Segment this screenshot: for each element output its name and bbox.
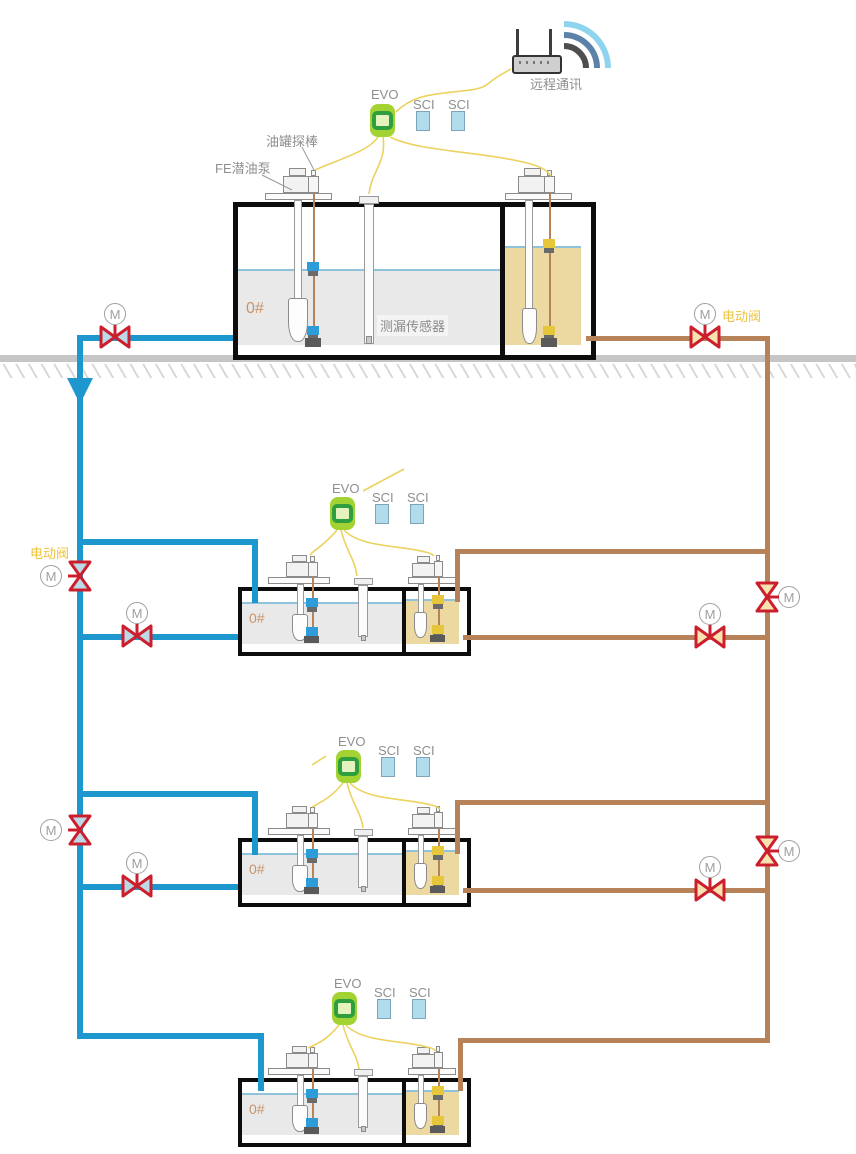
evo-controller-icon <box>330 497 355 530</box>
tank-divider <box>402 591 406 652</box>
pump-motor-cap <box>417 556 430 563</box>
pump-motor-cap <box>417 1047 430 1054</box>
pump-motor-cap <box>417 807 430 814</box>
probe-float <box>306 1089 318 1098</box>
pump-tube <box>297 835 304 867</box>
leak-sensor-collar <box>354 1069 373 1076</box>
sci-module-icon <box>381 757 395 777</box>
valve-motor-badge: M <box>104 303 126 325</box>
sci-module-icon <box>416 111 430 131</box>
electric-valve-label: 电动阀 <box>722 306 761 325</box>
evo-label: EVO <box>371 87 398 102</box>
probe-weight <box>305 338 321 347</box>
pump-tube <box>418 1075 424 1105</box>
leak-sensor-tube <box>358 836 368 888</box>
probe-float <box>306 1118 318 1127</box>
probe-head <box>308 176 319 193</box>
valve-motor-badge: M <box>699 856 721 878</box>
router-icon <box>512 55 562 74</box>
leak-sensor-tube <box>358 1076 368 1128</box>
wifi-signal-icon <box>562 8 626 70</box>
fe-pump-label: FE潜油泵 <box>215 158 271 177</box>
valve-motor-badge: M <box>699 603 721 625</box>
evo-screen <box>334 999 355 1018</box>
sci-label: SCI <box>409 985 431 1000</box>
pump-tube <box>297 1075 304 1107</box>
router-leds <box>519 61 553 64</box>
probe-float <box>432 625 444 634</box>
ground-hatch <box>0 364 856 378</box>
probe-float <box>307 262 319 271</box>
fuel-grade-label: 0# <box>249 1101 265 1117</box>
sci-module-icon <box>451 111 465 131</box>
probe-float <box>432 846 444 855</box>
probe-weight <box>304 1127 319 1134</box>
sci-label: SCI <box>413 743 435 758</box>
sci-label: SCI <box>372 490 394 505</box>
pump-body <box>414 1103 427 1129</box>
fuel-grade-label: 0# <box>249 861 265 877</box>
valve-motor-badge: M <box>778 586 800 608</box>
motor-valve-icon <box>120 623 154 654</box>
probe-head <box>308 813 318 828</box>
valve-motor-badge: M <box>126 852 148 874</box>
evo-controller-icon <box>336 750 361 783</box>
sci-module-icon <box>410 504 424 524</box>
valve-motor-badge: M <box>40 565 62 587</box>
pump-body <box>522 308 537 344</box>
motor-valve-icon <box>120 873 154 904</box>
pipe-gasoline-st2-top <box>455 549 770 554</box>
probe-head <box>434 812 443 828</box>
pump-tube <box>297 584 304 616</box>
sci-label: SCI <box>378 743 400 758</box>
tank-divider <box>500 207 505 355</box>
probe-weight <box>304 887 319 894</box>
pump-flange <box>268 577 330 584</box>
pipe-gasoline-st2-drop <box>455 549 460 602</box>
probe-head-tip <box>310 556 315 562</box>
tank-divider <box>402 1082 406 1143</box>
motor-valve-icon <box>754 580 780 619</box>
tank-divider <box>402 842 406 903</box>
leak-sensor-tip <box>361 1126 366 1132</box>
sci-module-icon <box>416 757 430 777</box>
pipe-diesel-st2-drop <box>252 539 258 603</box>
sci-module-icon <box>375 504 389 524</box>
pipe-gasoline-trunk <box>765 336 770 1043</box>
pump-flange <box>408 828 456 835</box>
pump-motor <box>412 563 436 577</box>
evo-label: EVO <box>332 481 359 496</box>
pipe-diesel-st3-drop <box>252 791 258 855</box>
pump-flange <box>408 1068 456 1075</box>
pump-motor <box>518 176 546 193</box>
pump-tube <box>418 584 424 614</box>
pump-flange <box>408 577 456 584</box>
pump-motor-cap <box>524 168 541 176</box>
motor-valve-icon <box>693 877 727 908</box>
probe-head-tip <box>310 1047 315 1053</box>
leak-sensor-tip <box>361 635 366 641</box>
leak-sensor-tip <box>361 886 366 892</box>
pipe-gasoline-st4-top <box>458 1038 770 1043</box>
pump-motor <box>412 814 436 828</box>
valve-motor-badge: M <box>778 840 800 862</box>
probe-float <box>306 878 318 887</box>
motor-valve-icon <box>693 624 727 655</box>
probe-float <box>432 1116 444 1125</box>
probe-weight <box>430 635 445 642</box>
pump-flange <box>268 828 330 835</box>
pipe-diesel-st3-top <box>77 791 258 797</box>
fuel-grade-label: 0# <box>249 610 265 626</box>
pump-tube <box>418 835 424 865</box>
pipe-diesel-trunk <box>77 335 83 1038</box>
probe-wire <box>549 193 551 345</box>
probe-float <box>432 595 444 604</box>
evo-label: EVO <box>338 734 365 749</box>
pump-motor-cap <box>292 555 307 562</box>
probe-weight <box>304 636 319 643</box>
evo-screen <box>332 504 353 523</box>
probe-head-tip <box>436 555 440 561</box>
leak-sensor-collar <box>354 578 373 585</box>
motor-valve-icon <box>754 834 780 873</box>
sci-label: SCI <box>448 97 470 112</box>
diesel-liquid <box>242 1093 402 1135</box>
probe-weight <box>430 1126 445 1133</box>
probe-head <box>544 176 555 193</box>
probe-weight <box>430 886 445 893</box>
probe-float <box>543 326 555 335</box>
pipe-diesel-st2-branch <box>77 634 238 640</box>
probe-head <box>308 562 318 577</box>
evo-screen <box>338 757 359 776</box>
pump-flange <box>268 1068 330 1075</box>
leak-sensor-label: 测漏传感器 <box>377 315 448 336</box>
pipe-gasoline-st3-drop <box>455 800 460 854</box>
pump-tube <box>294 200 302 300</box>
sci-label: SCI <box>413 97 435 112</box>
evo-label: EVO <box>334 976 361 991</box>
probe-head-tip <box>547 170 552 176</box>
leak-sensor-collar <box>359 196 379 204</box>
sci-label: SCI <box>407 490 429 505</box>
pipe-diesel-st2-top <box>77 539 258 545</box>
router-antenna <box>516 29 519 56</box>
pump-body <box>414 612 427 638</box>
leak-sensor-tip <box>366 336 372 344</box>
pipe-gasoline-st3-top <box>455 800 770 805</box>
probe-head <box>434 561 443 577</box>
pump-flange <box>505 193 572 200</box>
sci-label: SCI <box>374 985 396 1000</box>
motor-valve-icon <box>688 324 722 355</box>
tank-probe-label: 油罐探棒 <box>266 131 318 150</box>
pipe-gasoline-st4-drop <box>458 1038 463 1091</box>
pump-motor-cap <box>289 168 306 176</box>
probe-float <box>306 627 318 636</box>
probe-float <box>307 326 319 335</box>
motor-valve-icon <box>67 813 93 852</box>
probe-float <box>306 849 318 858</box>
remote-comm-label: 远程通讯 <box>530 74 582 93</box>
pump-motor <box>412 1054 436 1068</box>
pump-motor-cap <box>292 1046 307 1053</box>
tank-station-1: 0# <box>233 202 596 360</box>
diesel-liquid <box>242 853 402 895</box>
pump-motor <box>283 176 311 193</box>
motor-valve-icon <box>98 324 132 355</box>
p2p-fuel-station-diagram: 0# 测漏传感器 0# <box>0 0 856 1154</box>
fuel-grade-label: 0# <box>246 300 264 318</box>
pump-body <box>288 298 308 342</box>
electric-valve-label: 电动阀 <box>30 543 69 562</box>
diesel-liquid <box>242 602 402 644</box>
probe-float <box>306 598 318 607</box>
probe-float <box>432 876 444 885</box>
motor-valve-icon <box>67 559 93 598</box>
probe-head <box>308 1053 318 1068</box>
probe-head-tip <box>436 1046 440 1052</box>
probe-head-tip <box>311 170 316 176</box>
leak-sensor-tube <box>364 204 374 344</box>
probe-head-tip <box>310 807 315 813</box>
evo-controller-icon <box>370 104 395 137</box>
valve-motor-badge: M <box>126 602 148 624</box>
pump-motor-cap <box>292 806 307 813</box>
evo-screen <box>372 111 393 130</box>
router-antenna <box>549 29 552 56</box>
tank-station-4: 0# <box>238 1078 471 1147</box>
valve-motor-badge: M <box>40 819 62 841</box>
probe-float <box>543 239 555 248</box>
sci-module-icon <box>377 999 391 1019</box>
tank-station-3: 0# <box>238 838 471 907</box>
probe-head-tip <box>436 806 440 812</box>
leak-sensor-tube <box>358 585 368 637</box>
evo-controller-icon <box>332 992 357 1025</box>
probe-weight <box>541 338 557 347</box>
probe-head <box>434 1052 443 1068</box>
pipe-diesel-st3-branch <box>77 884 238 890</box>
leak-sensor-collar <box>354 829 373 836</box>
pump-body <box>414 863 427 889</box>
probe-float <box>432 1086 444 1095</box>
pipe-diesel-st4-drop <box>258 1033 264 1091</box>
tank-station-2: 0# <box>238 587 471 656</box>
flow-arrow-down <box>67 378 93 404</box>
pump-tube <box>525 200 533 310</box>
pipe-gasoline-tank1 <box>586 336 770 341</box>
valve-motor-badge: M <box>694 303 716 325</box>
sci-module-icon <box>412 999 426 1019</box>
pump-flange <box>265 193 332 200</box>
pipe-diesel-st4-top <box>77 1033 264 1039</box>
